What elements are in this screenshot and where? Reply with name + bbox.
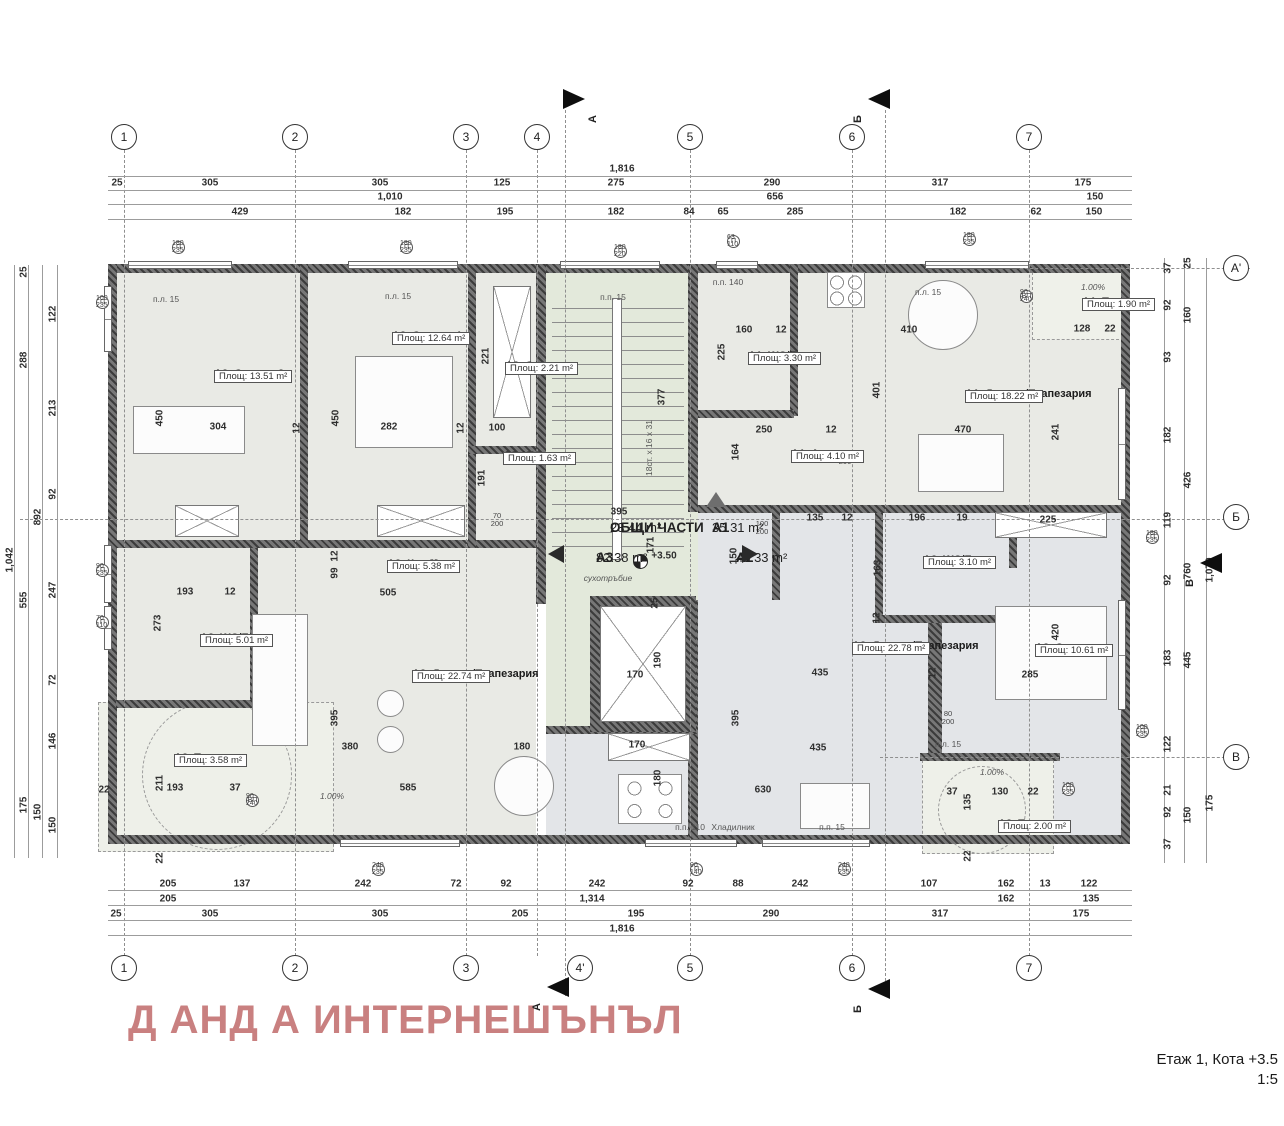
grid-bubble-bottom: 5: [677, 955, 703, 981]
dimension-bottom: 205: [512, 909, 529, 920]
dimension-plan: 163: [873, 560, 884, 577]
annotation-note: 1.00%: [320, 791, 344, 801]
watermark-company-name: Д АНД А ИНТЕРНЕШЪНЪЛ: [128, 998, 683, 1043]
grid-line-section-a: [565, 110, 566, 996]
window-right-2: [1118, 600, 1126, 710]
title-block: Етаж 1, Кота +3.5 1:5: [1156, 1050, 1278, 1091]
dimension-plan: 164: [731, 444, 742, 461]
furniture-table-a3: [494, 756, 554, 816]
dimension-bottom: 135: [1083, 894, 1100, 905]
dimension-plan: 12: [292, 422, 303, 433]
dimension-left: 72: [48, 674, 59, 685]
dimension-plan: 395: [330, 710, 341, 727]
section-flag-label: Б: [852, 115, 864, 123]
dimension-plan: 170: [627, 670, 644, 681]
dimension-plan: 100: [489, 423, 506, 434]
dimension-plan: 12: [841, 513, 852, 524]
dimension-plan: 128: [1074, 324, 1091, 335]
dimension-plan: 25: [650, 597, 661, 608]
dim-line-right-1: [1164, 258, 1165, 863]
dimension-right: 37: [1163, 838, 1174, 849]
dimension-plan: 585: [400, 783, 417, 794]
dimension-bottom: 195: [628, 909, 645, 920]
section-flag: [1200, 553, 1222, 573]
grid-bubble-bottom: 6: [839, 955, 865, 981]
grid-line-3: [466, 150, 467, 956]
wardrobe-a3-2: [377, 505, 465, 537]
grid-bubble-bottom: 4': [567, 955, 593, 981]
dimension-top: 275: [608, 178, 625, 189]
dim-line-bottom-1: [108, 890, 1132, 891]
grid-bubble-bottom: 1: [111, 955, 137, 981]
apartment-arrow-up: [706, 492, 726, 507]
dimension-plan: 99: [330, 567, 341, 578]
grid-bubble-top: 3: [453, 124, 479, 150]
dimension-right: 182: [1163, 427, 1174, 444]
grid-bubble-top: 2: [282, 124, 308, 150]
dimension-bottom: 92: [682, 879, 693, 890]
dim-line-bottom-3: [108, 920, 1132, 921]
dimension-bottom: 242: [792, 879, 809, 890]
dimension-left: 122: [48, 306, 59, 323]
dimension-plan: 12: [224, 587, 235, 598]
grid-bubble-top: 1: [111, 124, 137, 150]
furniture-sofa-a1: [918, 434, 1004, 492]
dimension-bottom: 137: [234, 879, 251, 890]
dimension-right: 21: [1163, 784, 1174, 795]
dimension-plan: 221: [481, 348, 492, 365]
window-bottom-2: [645, 839, 737, 847]
dimension-plan: 193: [167, 783, 184, 794]
grid-line-7: [1029, 150, 1030, 956]
dim-line-bottom-2: [108, 905, 1132, 906]
grid-line-a-prime: [1020, 268, 1250, 269]
dimension-plan: 505: [380, 588, 397, 599]
section-flag-label: В: [1184, 579, 1196, 587]
dimension-right: 122: [1163, 736, 1174, 753]
dimension-right: 445: [1183, 652, 1194, 669]
dimension-plan: 196: [909, 513, 926, 524]
dimension-bottom: 205: [160, 879, 177, 890]
dimension-plan: 22: [963, 850, 974, 861]
section-flag-label: А: [587, 115, 599, 123]
dimension-plan: 211: [155, 775, 166, 791]
wardrobe-sklad: [493, 286, 531, 418]
dimension-top: 25: [111, 178, 122, 189]
section-flag-label: Б: [852, 1005, 864, 1013]
dimension-left: 555: [19, 592, 30, 609]
dimension-plan: 435: [810, 743, 827, 754]
dimension-right: 150: [1183, 807, 1194, 824]
dimension-plan: 22: [1104, 324, 1115, 335]
window-right-1: [1118, 388, 1126, 500]
wall-a1-bath-right: [790, 264, 798, 416]
dimension-bottom: 317: [932, 909, 949, 920]
dimension-plan: 395: [731, 710, 742, 727]
dimension-bottom: 175: [1073, 909, 1090, 920]
dimension-plan: 170: [629, 740, 646, 751]
dimension-plan: 180: [514, 742, 531, 753]
dimension-left: 175: [19, 797, 30, 814]
apartment-arrow-left: [548, 545, 564, 563]
grid-line-2: [295, 150, 296, 956]
dimension-plan: 12: [330, 550, 341, 561]
dimension-left: 288: [19, 352, 30, 369]
dimension-left: 150: [48, 817, 59, 834]
dimension-plan: 22: [155, 852, 166, 863]
dimension-plan: 380: [342, 742, 359, 753]
furniture-bed-a3-bedroom1: [355, 356, 453, 448]
wall-bedroom-divider-1: [300, 264, 308, 548]
grid-line-4: [537, 150, 538, 956]
dimension-bottom: 72: [450, 879, 461, 890]
grid-line-1: [124, 150, 125, 956]
dimension-bottom: 1,816: [609, 924, 634, 935]
dimension-plan: 135: [963, 794, 974, 811]
dimension-top: 195: [497, 207, 514, 218]
dimension-top: 175: [1075, 178, 1092, 189]
dimension-bottom: 1,314: [579, 894, 604, 905]
dim-line-top-4: [108, 219, 1132, 220]
dimension-top: 285: [787, 207, 804, 218]
dimension-plan: 37: [229, 783, 240, 794]
dimension-plan: 130: [992, 787, 1009, 798]
dimension-right: 37: [1163, 262, 1174, 273]
dimension-left: 25: [19, 266, 30, 277]
window-bottom-3: [762, 839, 870, 847]
dimension-plan: 420: [1051, 624, 1062, 641]
dimension-top: 125: [494, 178, 511, 189]
dimension-bottom: 305: [202, 909, 219, 920]
annotation-note: 1.00%: [1081, 282, 1105, 292]
dimension-bottom: 162: [998, 879, 1015, 890]
grid-bubble-bottom: 2: [282, 955, 308, 981]
grid-bubble-top: 5: [677, 124, 703, 150]
dimension-plan: 250: [756, 425, 773, 436]
dimension-plan: 241: [1051, 424, 1062, 441]
dimension-plan: 12: [928, 667, 939, 678]
dimension-bottom: 92: [500, 879, 511, 890]
grid-bubble-right: A': [1223, 255, 1249, 281]
dimension-plan: 285: [1022, 670, 1039, 681]
dimension-bottom: 107: [921, 879, 938, 890]
annotation-note: п.п. 15: [600, 292, 626, 302]
dimension-top: 656: [767, 192, 784, 203]
dimension-top: 317: [932, 178, 949, 189]
dimension-plan: 470: [955, 425, 972, 436]
annotation-note: сухотръбие: [584, 573, 633, 583]
section-flag: [868, 89, 890, 109]
dimension-right: 175: [1205, 795, 1216, 812]
section-flag-label: А: [531, 1003, 543, 1011]
grid-bubble-bottom: 7: [1016, 955, 1042, 981]
dimension-plan: 304: [210, 422, 227, 433]
dimension-plan: 12: [825, 425, 836, 436]
door-size-label: 80 200: [942, 710, 955, 727]
window-top-1: [128, 261, 232, 269]
dimension-left: 1,042: [5, 547, 16, 572]
dim-line-bottom-4: [108, 935, 1132, 936]
window-bottom-1: [340, 839, 460, 847]
annotation-note: п.л. 15: [915, 287, 941, 297]
dimension-right: 92: [1163, 806, 1174, 817]
grid-line-6: [852, 150, 853, 956]
dimension-top: 182: [395, 207, 412, 218]
window-top-2: [348, 261, 458, 269]
dimension-bottom: 25: [110, 909, 121, 920]
wardrobe-a3-1: [175, 505, 239, 537]
dimension-top: 65: [717, 207, 728, 218]
dimension-plan: 135: [807, 513, 824, 524]
dimension-left: 146: [48, 733, 59, 750]
dimension-plan: 160: [736, 325, 753, 336]
dimension-bottom: 13: [1039, 879, 1050, 890]
floor-plan-canvas: Д АНД А ИНТЕРНЕШЪНЪЛ Етаж 1, Кота +3.5 1…: [0, 0, 1284, 1126]
dimension-plan: 12: [775, 325, 786, 336]
dimension-plan: 450: [331, 410, 342, 427]
drawing-scale: 1:5: [1156, 1070, 1278, 1090]
dimension-plan: 12: [872, 612, 883, 623]
dimension-plan: 273: [153, 615, 164, 632]
elevator-cab: [600, 606, 686, 722]
dimension-bottom: 162: [998, 894, 1015, 905]
wall-a1-bath-bottom: [698, 410, 794, 418]
wall-bedroom-divider-2: [468, 264, 476, 548]
grid-bubble-top: 6: [839, 124, 865, 150]
dimension-right: 183: [1163, 650, 1174, 667]
furniture-stool-2: [377, 726, 404, 753]
dimension-right: 426: [1183, 472, 1194, 489]
dimension-left: 892: [33, 509, 44, 526]
window-top-bath: [716, 261, 758, 269]
dimension-top: 1,010: [377, 192, 402, 203]
furniture-bed-a3-bedroom2: [133, 406, 245, 454]
grid-line-v-row: [880, 757, 1250, 758]
dimension-bottom: 88: [732, 879, 743, 890]
dimension-plan: 22: [1027, 787, 1038, 798]
furniture-stove-a1: [827, 272, 865, 308]
grid-bubble-top: 4: [524, 124, 550, 150]
dimension-bottom: 242: [355, 879, 372, 890]
dimension-plan: 395: [611, 507, 628, 518]
section-flag: [563, 89, 585, 109]
furniture-stove-a2: [618, 774, 682, 824]
dimension-top: 84: [683, 207, 694, 218]
dimension-right: 92: [1163, 299, 1174, 310]
grid-line-5: [690, 150, 691, 956]
dimension-bottom: 290: [763, 909, 780, 920]
dimension-plan: 19: [956, 513, 967, 524]
dimension-plan: 180: [653, 770, 664, 787]
annotation-note: п.л. 15: [385, 291, 411, 301]
dimension-right: 92: [1163, 574, 1174, 585]
grid-bubble-bottom: 3: [453, 955, 479, 981]
dimension-plan: 435: [812, 668, 829, 679]
grid-bubble-right: Б: [1223, 504, 1249, 530]
dimension-plan: 193: [177, 587, 194, 598]
grid-bubble-right: В: [1223, 744, 1249, 770]
dimension-bottom: 305: [372, 909, 389, 920]
dimension-top: 429: [232, 207, 249, 218]
furniture-stool-1: [377, 690, 404, 717]
dim-line-top-2: [108, 190, 1132, 191]
dimension-plan: 190: [653, 652, 664, 669]
dimension-left: 150: [33, 804, 44, 821]
annotation-note: 1.00%: [980, 767, 1004, 777]
dim-line-top-3: [108, 204, 1132, 205]
dimension-left: 213: [48, 400, 59, 417]
annotation-note: п.п. 110: [675, 822, 705, 832]
dimension-bottom: 242: [589, 879, 606, 890]
section-flag: [547, 977, 569, 997]
dimension-plan: 12: [456, 422, 467, 433]
grid-bubble-top: 7: [1016, 124, 1042, 150]
wardrobe-hall: [608, 733, 690, 761]
dimension-right: 93: [1163, 351, 1174, 362]
dimension-top: 182: [950, 207, 967, 218]
dimension-plan: 37: [946, 787, 957, 798]
dimension-left: 92: [48, 488, 59, 499]
dimension-bottom: 205: [160, 894, 177, 905]
dimension-top: 290: [764, 178, 781, 189]
annotation-note: п.л. 15: [935, 739, 961, 749]
grid-line-section-b: [885, 110, 886, 996]
dimension-top: 182: [608, 207, 625, 218]
annotation-note: 18ст. x 16 x 31: [644, 420, 654, 476]
annotation-note: п.л. 15: [153, 294, 179, 304]
door-size-label: 70 200: [491, 512, 504, 529]
dimension-right: 160: [1183, 307, 1194, 324]
dim-line-right-2: [1184, 258, 1185, 863]
dimension-top: 62: [1030, 207, 1041, 218]
dimension-plan: 401: [872, 382, 883, 399]
dimension-plan: 225: [717, 344, 728, 361]
dimension-bottom: 122: [1081, 879, 1098, 890]
dimension-right: 760: [1183, 563, 1194, 580]
annotation-note: Хладилник: [711, 822, 754, 832]
window-top-stair: [560, 261, 660, 269]
window-top-living: [925, 261, 1029, 269]
dimension-top: 150: [1086, 207, 1103, 218]
dimension-top: 150: [1087, 192, 1104, 203]
dimension-plan: 410: [901, 325, 918, 336]
dimension-plan: 450: [155, 410, 166, 427]
dimension-plan: 225: [1040, 515, 1057, 526]
dim-line-left-4: [57, 265, 58, 858]
annotation-note: п.п. 15: [819, 822, 845, 832]
dimension-plan: 377: [657, 389, 668, 406]
drawing-title: Етаж 1, Кота +3.5: [1156, 1050, 1278, 1070]
dimension-top: 305: [372, 178, 389, 189]
wall-a3-bath-bottom: [116, 700, 258, 708]
dimension-right: 119: [1163, 512, 1174, 528]
dimension-plan: 22: [98, 785, 109, 796]
wall-exterior-bottom: [108, 835, 1130, 844]
level-mark-value: +3.50: [651, 551, 676, 562]
dimension-left: 247: [48, 582, 59, 599]
dimension-plan: 191: [477, 470, 488, 487]
dimension-right: 25: [1183, 257, 1194, 268]
dimension-top: 305: [202, 178, 219, 189]
apartment-arrow-right: [742, 545, 758, 563]
dimension-plan: 282: [381, 422, 398, 433]
dimension-top: 1,816: [609, 164, 634, 175]
dimension-plan: 630: [755, 785, 772, 796]
dim-line-left-3: [42, 265, 43, 858]
annotation-note: п.п. 140: [713, 277, 743, 287]
section-flag: [868, 979, 890, 999]
